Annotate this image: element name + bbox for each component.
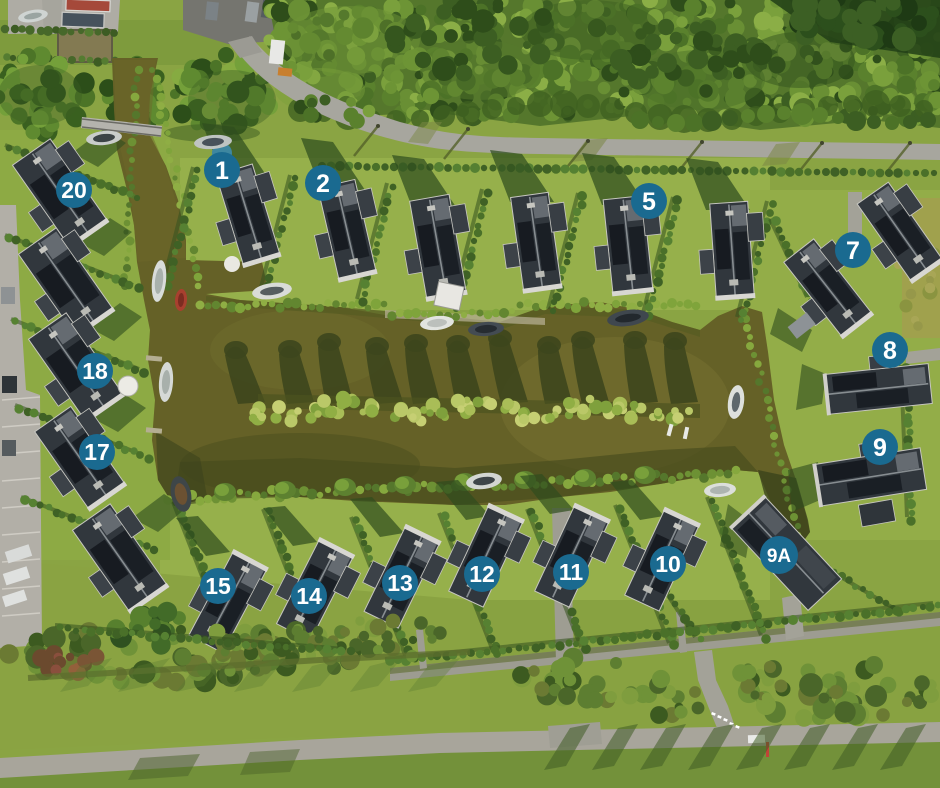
svg-text:5: 5	[642, 188, 656, 216]
svg-text:13: 13	[387, 570, 413, 596]
svg-text:10: 10	[655, 551, 681, 577]
svg-text:2: 2	[316, 170, 330, 198]
svg-text:8: 8	[883, 337, 897, 365]
svg-text:12: 12	[469, 561, 495, 587]
svg-text:20: 20	[61, 177, 87, 203]
svg-text:14: 14	[296, 583, 322, 609]
svg-text:11: 11	[559, 559, 584, 585]
svg-text:9: 9	[873, 434, 887, 462]
svg-text:9A: 9A	[767, 546, 792, 567]
svg-text:7: 7	[846, 237, 860, 265]
svg-text:17: 17	[84, 439, 110, 465]
svg-text:15: 15	[205, 573, 231, 599]
svg-text:18: 18	[82, 358, 108, 384]
svg-text:1: 1	[215, 157, 229, 185]
